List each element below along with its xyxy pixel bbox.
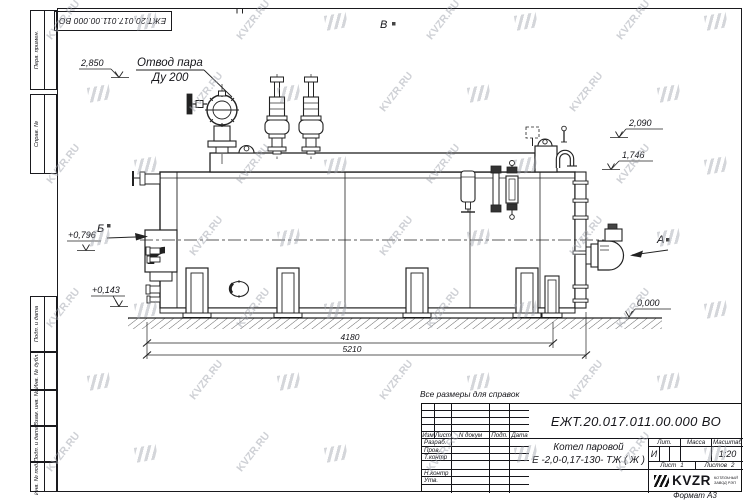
lit-value: И bbox=[649, 447, 660, 462]
title-block-left-grid: Изм Лист N докум Подп. Дата Разраб. Пров… bbox=[422, 404, 529, 493]
row-prov: Пров. bbox=[422, 447, 452, 454]
margin-label: Справ. № bbox=[34, 121, 40, 147]
title-block: Изм Лист N докум Подп. Дата Разраб. Пров… bbox=[421, 403, 742, 492]
margin-label: Подп. и дата bbox=[34, 306, 40, 342]
list-cell: Лист1 bbox=[649, 462, 696, 470]
margin-label: Инв. № подл. bbox=[34, 459, 40, 495]
margin-box-inv-podl: Инв. № подл. bbox=[30, 462, 57, 492]
margin-box-vzam-inv: Взам. инв. № bbox=[30, 390, 57, 426]
product-name-line2: Е -2,0-0,17-130- ТЖ ( Ж ) bbox=[532, 454, 645, 467]
reference-note: Все размеры для справок bbox=[420, 389, 519, 399]
row-blank bbox=[422, 461, 452, 470]
row-tkontr: Т.контр bbox=[422, 454, 452, 461]
margin-label: Перв. примен. bbox=[34, 31, 40, 70]
margin-box-podp-data-1: Подп. и дата bbox=[30, 296, 57, 352]
margin-box-inv-dubl: Инв. № дубл. bbox=[30, 352, 57, 390]
empty-cell bbox=[529, 470, 649, 493]
col-izm: Изм bbox=[422, 432, 435, 439]
row-razrab: Разраб. bbox=[422, 439, 452, 447]
product-name-line1: Котел паровой bbox=[553, 441, 623, 454]
margin-label: Взам. инв. № bbox=[34, 390, 40, 426]
company-logo: KVZR КОТЕЛЬНЫЙЗАВОД РЭП bbox=[649, 470, 743, 491]
col-ndok: N докум bbox=[452, 432, 490, 439]
top-doc-number-box: ЕЖТ.20.017.011.00.000 ВО bbox=[54, 11, 172, 31]
masshtab-value: 1:20 bbox=[712, 447, 743, 462]
title-doc-number: ЕЖТ.20.017.011.00.000 ВО bbox=[529, 404, 743, 439]
listov-cell: Листов2 bbox=[696, 462, 743, 470]
lit-label: Лит. bbox=[649, 439, 681, 447]
kvzr-logo-icon bbox=[654, 475, 669, 487]
margin-label: Подп. и дата bbox=[34, 426, 40, 462]
massa-value bbox=[681, 447, 712, 462]
product-name: Котел паровой Е -2,0-0,17-130- ТЖ ( Ж ) bbox=[529, 439, 649, 470]
masshtab-label: Масштаб bbox=[712, 439, 743, 447]
massa-label: Масса bbox=[681, 439, 712, 447]
top-doc-number: ЕЖТ.20.017.011.00.000 ВО bbox=[59, 16, 166, 26]
col-podp: Подп. bbox=[490, 432, 510, 439]
margin-box-podp-data-2: Подп. и дата bbox=[30, 426, 57, 462]
kvzr-logo-subtext: КОТЕЛЬНЫЙЗАВОД РЭП bbox=[714, 476, 738, 485]
margin-box-sprav-n: Справ. № bbox=[30, 94, 57, 174]
blueprint-page: { "frame": { "left_labels": ["Перв. прим… bbox=[0, 0, 750, 500]
col-list: Лист bbox=[435, 432, 452, 439]
row-utv: Утв. bbox=[422, 477, 452, 485]
margin-box-perv-primen: Перв. примен. bbox=[30, 10, 57, 90]
lit-massa-masshtab: Лит. Масса Масштаб И 1:20 Лист1 Листов2 bbox=[649, 439, 743, 470]
col-data: Дата bbox=[510, 432, 529, 439]
margin-label: Инв. № дубл. bbox=[34, 353, 40, 389]
row-nkontr: Н.контр bbox=[422, 470, 452, 477]
format-label: Формат А3 bbox=[630, 491, 750, 500]
kvzr-logo-text: KVZR bbox=[672, 473, 711, 488]
